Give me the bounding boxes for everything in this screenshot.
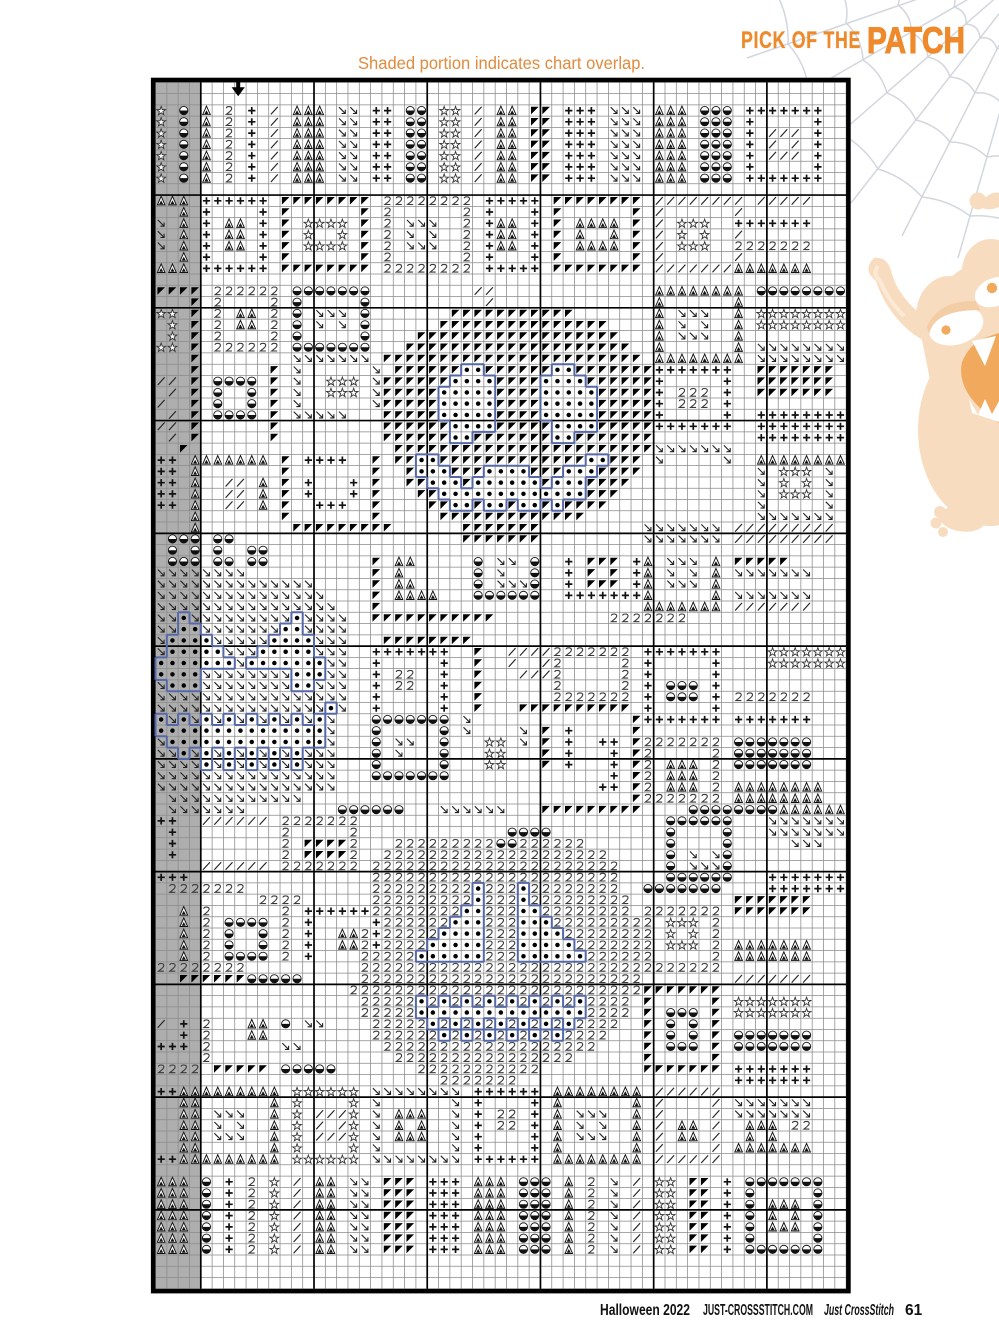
svg-text:61: 61 bbox=[905, 1302, 923, 1319]
svg-text:Shaded portion indicates chart: Shaded portion indicates chart overlap. bbox=[358, 53, 645, 73]
svg-text:PATCH: PATCH bbox=[867, 20, 965, 61]
svg-text:PICK OF THE: PICK OF THE bbox=[741, 27, 861, 54]
svg-text:Halloween 2022: Halloween 2022 bbox=[600, 1302, 690, 1319]
svg-text:JUST-CROSSSTITCH.COM: JUST-CROSSSTITCH.COM bbox=[703, 1302, 813, 1319]
svg-text:Just CrossStitch: Just CrossStitch bbox=[824, 1302, 894, 1319]
